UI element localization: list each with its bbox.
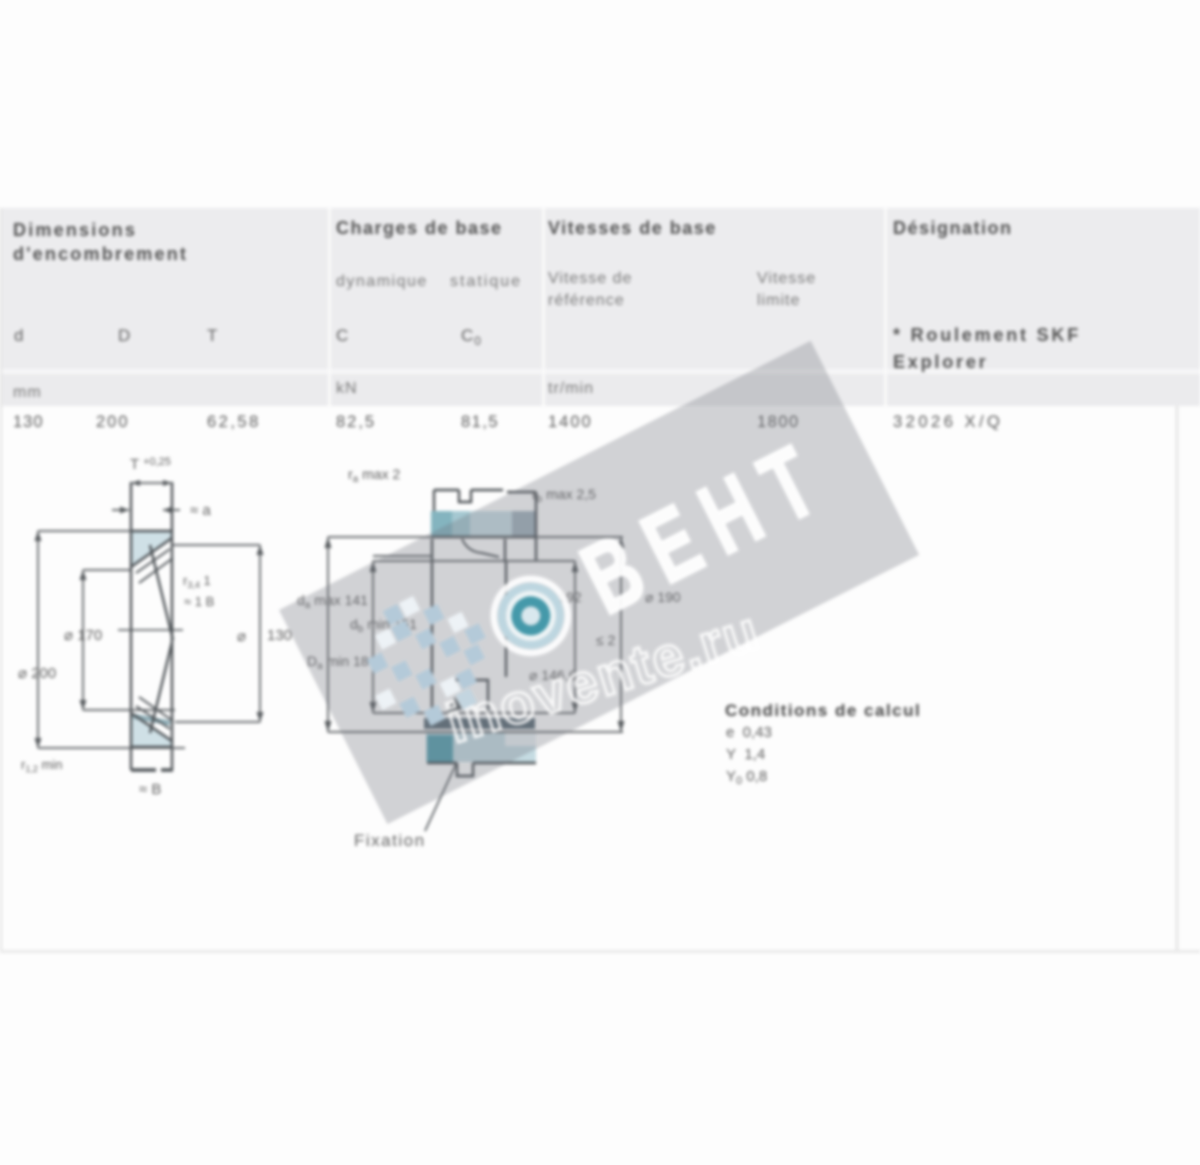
svg-text:⌀ 200: ⌀ 200 <box>18 665 56 682</box>
svg-text:r3,4 1: r3,4 1 <box>183 573 211 590</box>
svg-text:≈ a: ≈ a <box>190 502 211 519</box>
svg-text:⌀: ⌀ <box>237 628 246 645</box>
svg-text:r1,2 min: r1,2 min <box>21 757 62 774</box>
svg-text:Fixation: Fixation <box>354 831 426 850</box>
svg-text:⌀ 170: ⌀ 170 <box>64 627 102 644</box>
svg-text:T +0,25: T +0,25 <box>130 456 171 473</box>
svg-text:≈ B: ≈ B <box>139 781 161 798</box>
svg-text:≈ 1 B: ≈ 1 B <box>184 594 214 609</box>
svg-text:ra max 2: ra max 2 <box>348 466 400 485</box>
